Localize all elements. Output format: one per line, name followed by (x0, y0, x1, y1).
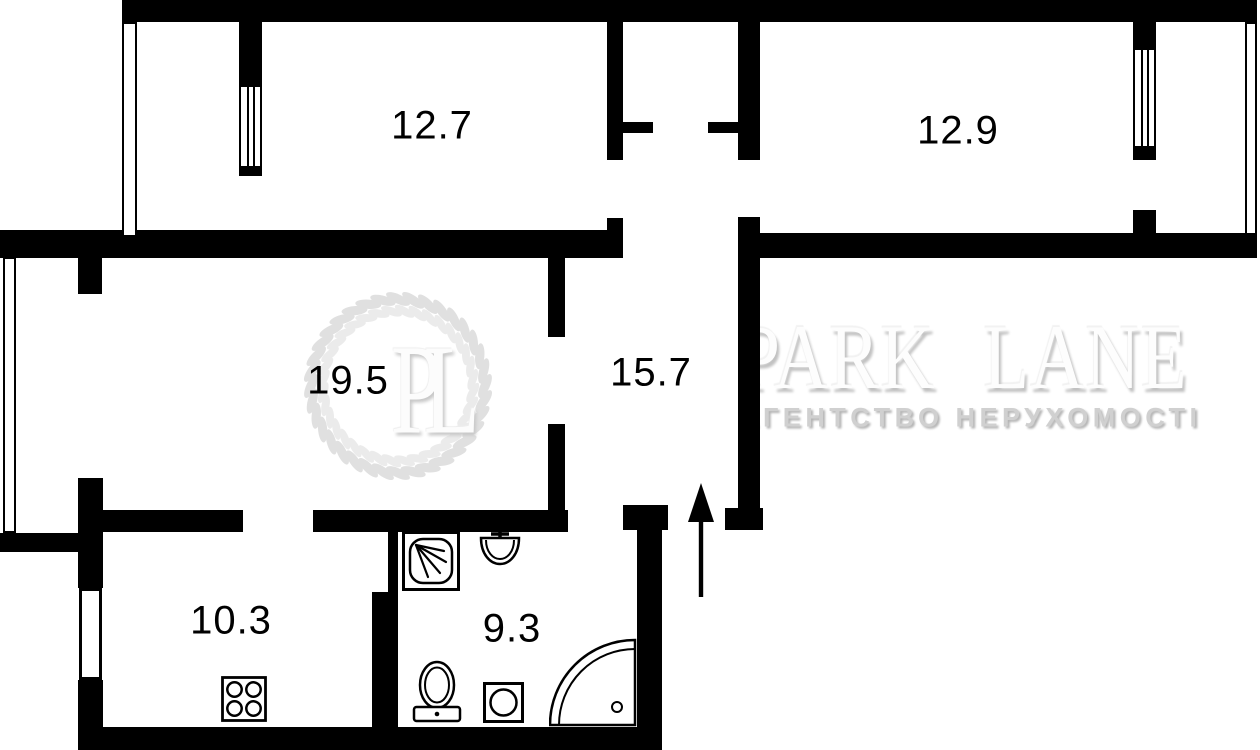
area-label-kitchen: 10.3 (190, 599, 272, 644)
wall-channel-left (607, 22, 623, 160)
corner-bathtub-icon (549, 635, 637, 727)
area-label-bathroom: 9.3 (483, 607, 542, 652)
wall-hallway-left-upper (548, 257, 565, 337)
wall-balcony1-jamb (239, 168, 262, 176)
wall-living-left-stub (78, 257, 102, 294)
floor-plan: PL PARK LANE АГЕНТСТВО НЕРУХОМОСТІ (0, 0, 1260, 750)
washing-machine-icon (483, 682, 524, 723)
wall-balcony1-partition (239, 22, 262, 85)
area-label-room-top-left: 12.7 (391, 104, 473, 149)
wall-channel-right-stub (708, 122, 738, 133)
window-pane (1141, 49, 1149, 147)
balcony-right-glazing-window (1245, 22, 1257, 235)
wall-balcony2-partition (1133, 22, 1156, 48)
loggia-glazing-window (3, 257, 16, 533)
wall-exterior-top (122, 0, 1257, 22)
wall-divider-thick (372, 592, 398, 745)
wall-bathroom-right (637, 528, 662, 750)
wall-room2-bottom (738, 233, 1257, 258)
wall-kitchen-top-left (97, 510, 243, 532)
area-label-room-top-right: 12.9 (917, 109, 999, 154)
kitchen-window (79, 588, 102, 680)
wall-balcony2-jamb-top (1133, 148, 1156, 160)
wall-divider-thin (388, 528, 398, 592)
wall-hallway-right-foot (725, 508, 763, 530)
wall-loggia-bottom (0, 533, 78, 552)
room2-balcony-window (1133, 48, 1156, 148)
area-label-living-room: 19.5 (307, 359, 389, 404)
wash-basin-icon (477, 527, 523, 567)
stove-icon (221, 676, 267, 722)
balcony-left-glazing-window (122, 22, 137, 237)
wall-kitchen-top-right (313, 510, 568, 532)
area-label-hallway: 15.7 (610, 351, 692, 396)
shower-tray-icon (402, 531, 460, 591)
wall-kitchen-left-upper (78, 478, 103, 588)
wall-balcony2-jamb-bottom (1133, 210, 1156, 237)
wall-kitchen-left-lower (78, 680, 103, 750)
window-pane (247, 86, 255, 167)
entrance-arrow-icon (687, 482, 715, 598)
toilet-icon (411, 659, 463, 724)
wall-channel-right (738, 22, 760, 160)
wall-bathroom-door-jamb (623, 505, 668, 530)
wall-room1-bottom (0, 230, 623, 258)
room1-balcony-window (239, 85, 262, 168)
wall-channel-left-stub (623, 122, 653, 133)
wall-hallway-right (738, 217, 760, 530)
wall-channel-left-jamb (607, 218, 623, 258)
